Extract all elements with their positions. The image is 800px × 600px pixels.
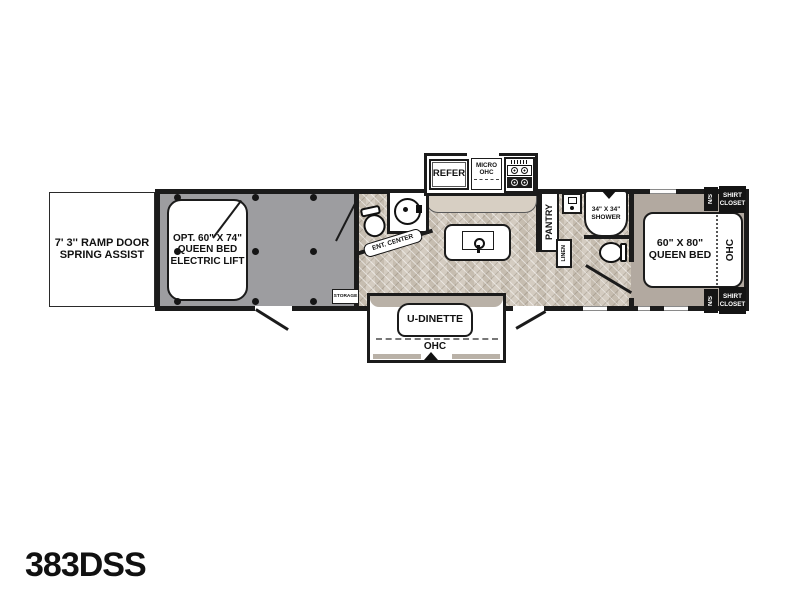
dinette-ohc-label: OHC bbox=[410, 341, 460, 352]
tie-down-icon bbox=[174, 248, 181, 255]
window bbox=[664, 306, 688, 311]
microwave-ohc: MICRO OHC bbox=[471, 158, 502, 190]
window bbox=[650, 189, 676, 194]
nightstand-top: N/S bbox=[704, 187, 718, 211]
tie-down-icon bbox=[252, 298, 259, 305]
linen-closet: LINEN bbox=[556, 239, 572, 268]
dinette-table-label: U-DINETTE bbox=[407, 314, 463, 326]
garage-bed-label-line1: OPT. 60" X 74" bbox=[171, 233, 245, 244]
sink-drain-dot bbox=[403, 207, 408, 212]
shirt-closet-top-label: SHIRT CLOSET bbox=[720, 192, 746, 206]
kitchen-counter bbox=[426, 196, 537, 213]
island-sink-faucet-icon bbox=[474, 238, 485, 249]
shirt-bottom-line2: CLOSET bbox=[720, 301, 746, 308]
bath-sink-faucet-icon bbox=[568, 197, 577, 204]
bedroom-wall-lower bbox=[629, 298, 634, 311]
shirt-closet-bottom-label: SHIRT CLOSET bbox=[720, 293, 746, 307]
ramp-door-label-line2: SPRING ASSIST bbox=[52, 249, 152, 261]
refrigerator: REFER bbox=[429, 159, 469, 190]
bath-sink-drain-dot bbox=[570, 206, 574, 210]
slide-arrow-icon bbox=[424, 352, 438, 360]
bath-sink bbox=[562, 193, 582, 214]
garage-bed-label: OPT. 60" X 74" QUEEN BED ELECTRIC LIFT bbox=[171, 233, 245, 267]
range-icon bbox=[504, 157, 535, 193]
micro-label-line1: MICRO bbox=[474, 162, 499, 169]
dinette-ohc-text: OHC bbox=[424, 341, 446, 352]
dinette-bench-left bbox=[373, 354, 421, 359]
storage-label: STORAGE bbox=[334, 294, 358, 299]
dinette-bench-right bbox=[452, 354, 500, 359]
pantry-label: PANTRY bbox=[544, 204, 554, 240]
dinette-table: U-DINETTE bbox=[397, 303, 473, 337]
nightstand-bottom: N/S bbox=[704, 289, 718, 313]
bedroom-bed-label-line1: 60" X 80" bbox=[647, 238, 713, 250]
garage-bed-label-line2: QUEEN BED bbox=[171, 244, 245, 255]
page-title: 383DSS bbox=[25, 546, 146, 584]
ramp-door-label-line1: 7' 3'' RAMP DOOR bbox=[52, 237, 152, 249]
bed-ohc-divider bbox=[716, 215, 718, 285]
vent-icon bbox=[601, 190, 617, 199]
model-number: 383DSS bbox=[25, 546, 146, 584]
bedroom-bed-label-line2: QUEEN BED bbox=[647, 250, 713, 262]
front-wall bbox=[155, 189, 160, 311]
garage-entry-door-swing-line bbox=[255, 308, 289, 330]
tie-down-icon bbox=[310, 194, 317, 201]
shower-label: 34" X 34" SHOWER bbox=[591, 206, 620, 221]
tie-down-icon bbox=[310, 248, 317, 255]
kitchen-slideout-window bbox=[467, 153, 499, 156]
bedroom-wall-upper bbox=[629, 189, 634, 262]
garage-bed-label-line3: ELECTRIC LIFT bbox=[171, 256, 245, 267]
main-entry-door-opening bbox=[513, 306, 544, 311]
bedroom-ohc-label: OHC bbox=[725, 239, 736, 261]
window bbox=[638, 306, 650, 311]
sink-faucet-icon bbox=[416, 205, 422, 213]
linen-label: LINEN bbox=[561, 245, 567, 262]
ramp-door-label: 7' 3'' RAMP DOOR SPRING ASSIST bbox=[52, 237, 152, 262]
tie-down-icon bbox=[252, 194, 259, 201]
storage-compartment: STORAGE bbox=[332, 289, 359, 304]
shower-label-line1: 34" X 34" bbox=[591, 206, 620, 213]
tie-down-icon bbox=[252, 248, 259, 255]
shirt-top-line1: SHIRT bbox=[723, 192, 742, 199]
range-vent bbox=[511, 160, 528, 164]
tie-down-icon bbox=[174, 194, 181, 201]
main-entry-door-swing-line bbox=[515, 310, 546, 329]
micro-label: MICRO OHC bbox=[474, 159, 499, 180]
toilet-icon bbox=[599, 241, 629, 265]
nightstand-bottom-label: N/S bbox=[708, 296, 714, 306]
floorplan-page: 7' 3'' RAMP DOOR SPRING ASSIST OPT. 60" … bbox=[0, 0, 800, 600]
shirt-top-line2: CLOSET bbox=[720, 200, 746, 207]
range-cooktop bbox=[507, 165, 532, 176]
shirt-closet-top: SHIRT CLOSET bbox=[719, 186, 746, 213]
shirt-bottom-line1: SHIRT bbox=[723, 293, 742, 300]
nightstand-top-label: N/S bbox=[708, 194, 714, 204]
window bbox=[583, 306, 607, 311]
range-oven bbox=[507, 177, 532, 188]
micro-label-line2: OHC bbox=[474, 169, 499, 176]
refer-label: REFER bbox=[433, 169, 465, 180]
tie-down-icon bbox=[174, 298, 181, 305]
island-sink-faucet-spout bbox=[477, 245, 480, 253]
shirt-closet-bottom: SHIRT CLOSET bbox=[719, 287, 746, 314]
tie-down-icon bbox=[310, 298, 317, 305]
dinette-slide-line bbox=[376, 338, 498, 340]
bedroom-bed-label: 60" X 80" QUEEN BED bbox=[647, 238, 713, 262]
bedroom-ohc: OHC bbox=[719, 215, 742, 285]
shower-label-line2: SHOWER bbox=[591, 214, 620, 221]
